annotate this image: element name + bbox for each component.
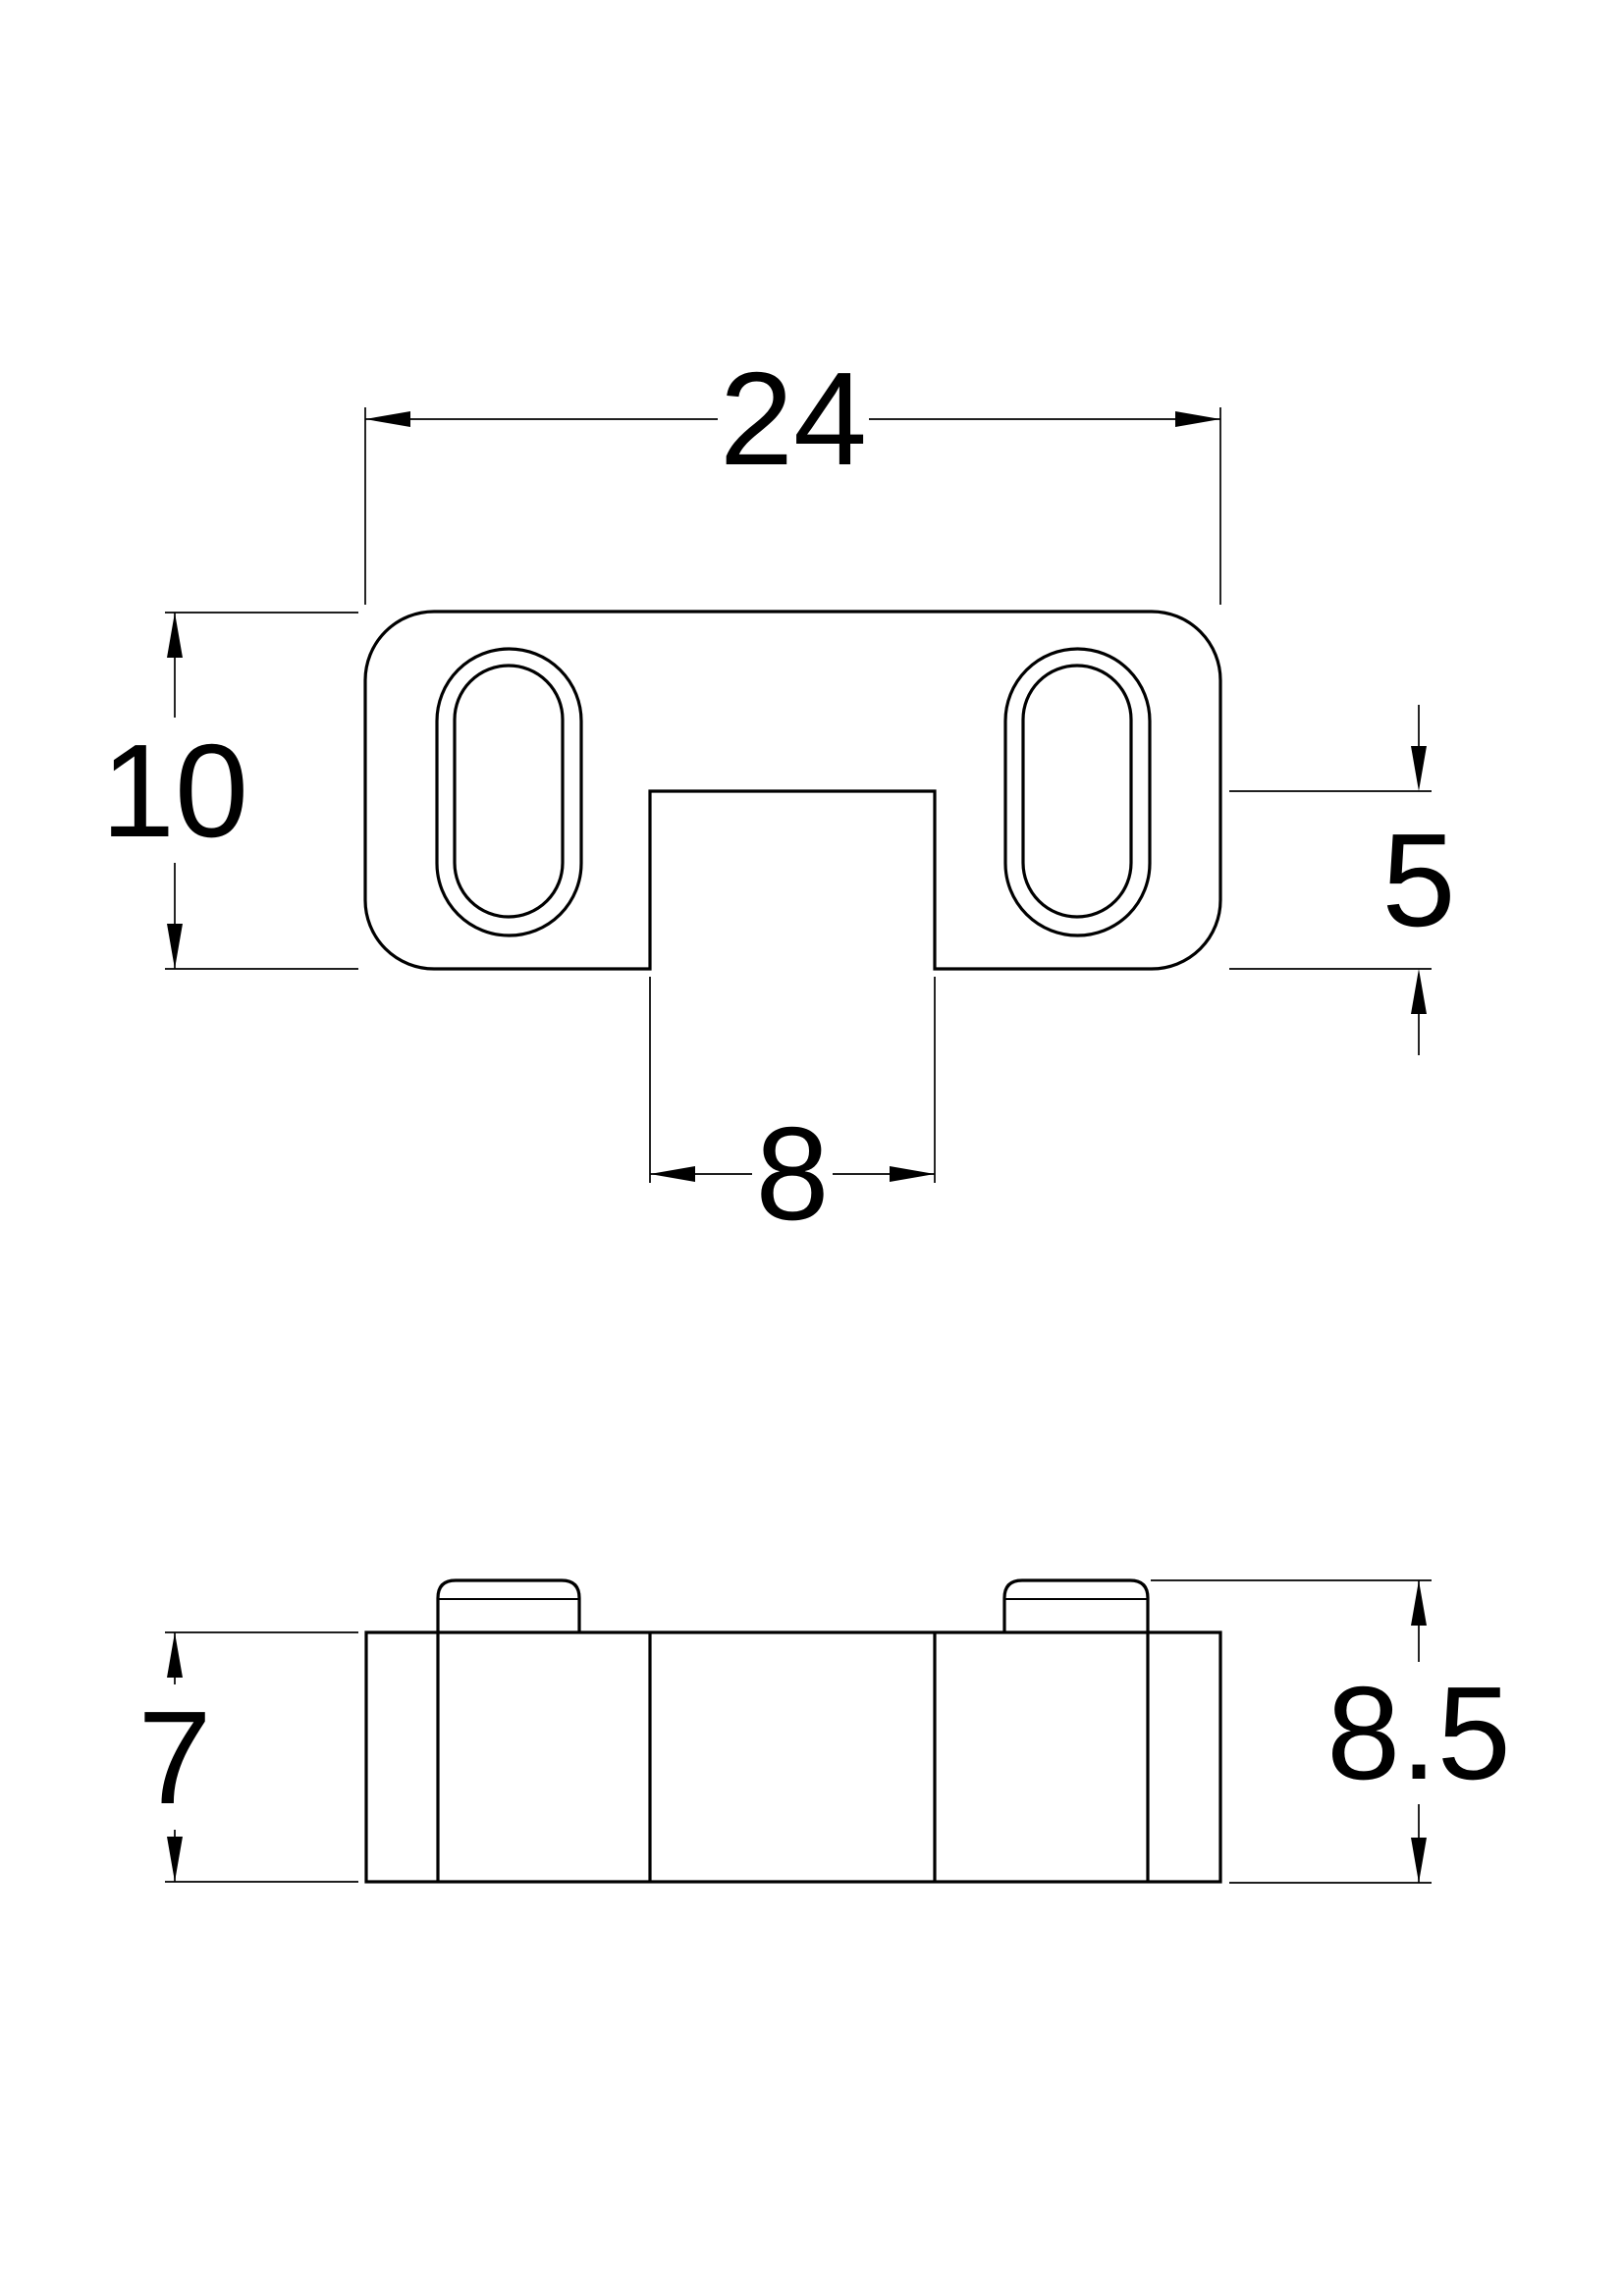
technical-drawing-canvas: 24 10 5	[0, 0, 1623, 2296]
dim-label-notch-width: 8	[755, 1099, 829, 1248]
drawing-page: 24 10 5	[0, 0, 1623, 2296]
dim-label-overall-width: 24	[720, 345, 867, 493]
dim-label-body-height: 7	[137, 1683, 211, 1832]
dim-label-overall-height: 8.5	[1326, 1659, 1511, 1807]
dim-label-overall-depth: 10	[101, 717, 248, 865]
dim-label-notch-depth: 5	[1381, 806, 1455, 954]
